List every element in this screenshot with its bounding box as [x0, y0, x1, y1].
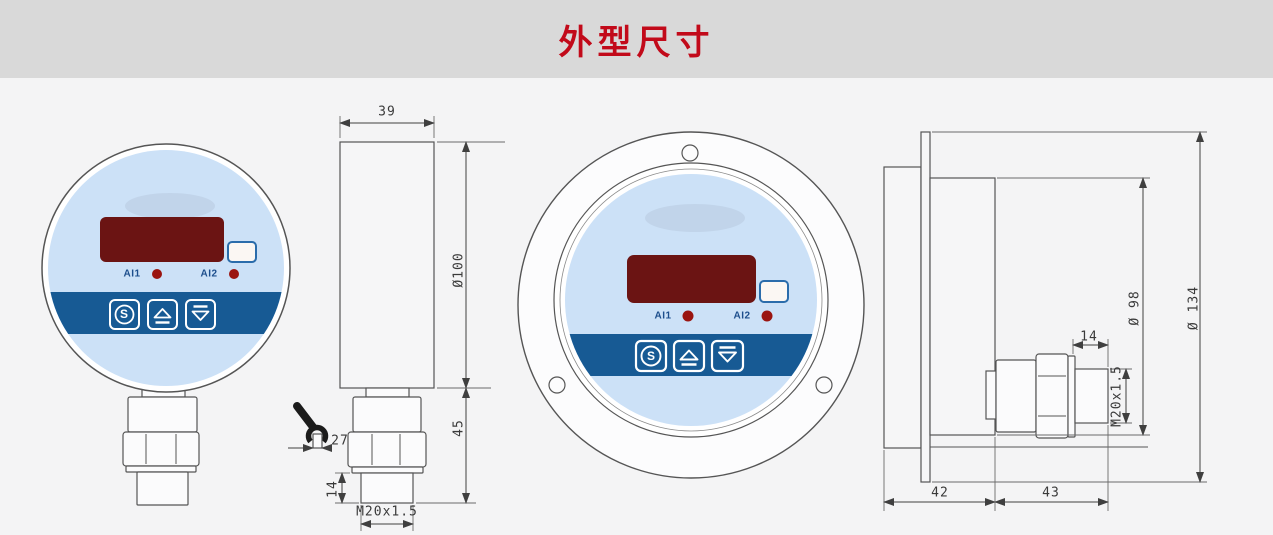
set-button-glyph: S [647, 349, 655, 363]
page-title: 外型尺寸 [559, 15, 715, 64]
dim-flanged-body-diameter: Ø 98 [1128, 290, 1143, 325]
ai2-label: AI2 [200, 269, 217, 280]
page-header: 外型尺寸 [0, 0, 1273, 78]
gauge-face [48, 150, 284, 386]
side-key [228, 242, 256, 262]
flanged-front-view-drawing [505, 110, 885, 490]
ai1-led [683, 311, 694, 322]
set-button-glyph: S [120, 307, 128, 321]
dim-flanged-thread-spec: M20x1.5 [1110, 365, 1125, 427]
dim-side-thread-spec: M20x1.5 [356, 505, 418, 520]
wrench-flat-tab [313, 434, 322, 448]
mount-hole-left [549, 377, 565, 393]
lcd-display [627, 255, 756, 303]
outline-dimensions-page: 外型尺寸 [0, 0, 1273, 535]
ai1-label: AI1 [654, 311, 671, 322]
lcd-display [100, 217, 224, 262]
dim-flanged-rear-length: 43 [1042, 486, 1060, 501]
side-view-drawing [280, 95, 520, 535]
face-smudge [125, 193, 215, 219]
mount-hole-right [816, 377, 832, 393]
wrench-icon [297, 406, 313, 427]
front-view-drawing [30, 120, 300, 520]
ai2-label: AI2 [733, 311, 750, 322]
ai2-led [229, 269, 239, 279]
ai1-label: AI1 [123, 269, 140, 280]
dim-flanged-front-depth: 42 [931, 486, 949, 501]
face-smudge [645, 204, 745, 232]
pressure-connector [123, 388, 199, 505]
ai2-led [762, 311, 773, 322]
dim-side-diameter: Ø100 [452, 252, 467, 287]
dim-side-lower-height: 45 [452, 419, 467, 437]
side-key [760, 281, 788, 302]
case-side-profile [340, 142, 434, 503]
dim-side-wrench-size: 27 [331, 434, 349, 449]
dim-side-thread-length: 14 [326, 480, 341, 498]
dim-side-width: 39 [378, 105, 396, 120]
dim-flanged-thread-length: 14 [1080, 330, 1098, 345]
dim-flanged-flange-diameter: Ø 134 [1187, 286, 1202, 330]
mount-hole-top [682, 145, 698, 161]
ai1-led [152, 269, 162, 279]
